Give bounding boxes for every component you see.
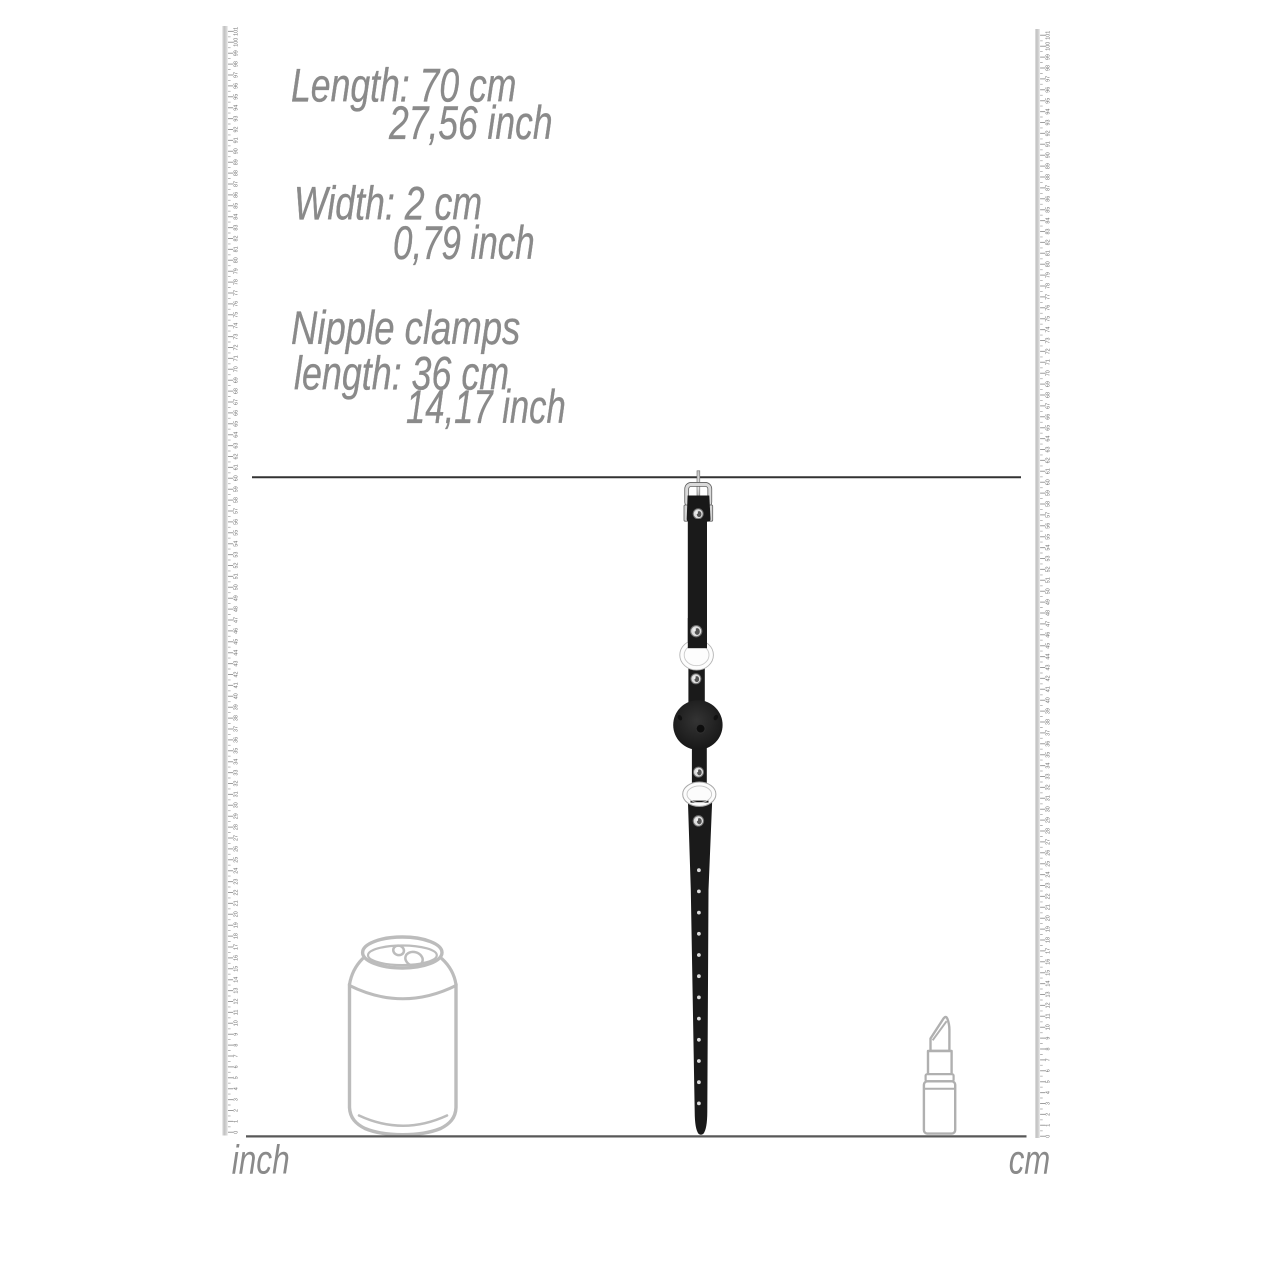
svg-text:57: 57 <box>1046 512 1052 518</box>
svg-text:32: 32 <box>234 781 240 787</box>
svg-text:17: 17 <box>234 944 240 950</box>
svg-text:93: 93 <box>1046 120 1052 126</box>
svg-text:27: 27 <box>1046 839 1052 845</box>
svg-text:26: 26 <box>1046 850 1052 856</box>
svg-text:79: 79 <box>1046 272 1052 278</box>
svg-text:27: 27 <box>234 835 240 841</box>
svg-text:cm: cm <box>1009 1136 1051 1182</box>
svg-text:73: 73 <box>234 334 240 340</box>
svg-text:89: 89 <box>234 159 240 165</box>
svg-text:64: 64 <box>234 432 240 438</box>
svg-text:87: 87 <box>1046 185 1052 191</box>
svg-text:21: 21 <box>1046 904 1052 910</box>
svg-text:84: 84 <box>1046 218 1052 224</box>
svg-text:36: 36 <box>234 737 240 743</box>
svg-text:49: 49 <box>234 595 240 601</box>
svg-text:16: 16 <box>234 955 240 961</box>
svg-text:3: 3 <box>1046 1102 1052 1105</box>
svg-text:45: 45 <box>234 639 240 645</box>
svg-text:76: 76 <box>1046 305 1052 311</box>
svg-text:1: 1 <box>1046 1124 1052 1127</box>
svg-text:15: 15 <box>234 966 240 972</box>
svg-text:76: 76 <box>234 301 240 307</box>
svg-text:94: 94 <box>1046 109 1052 115</box>
svg-text:50: 50 <box>234 584 240 590</box>
svg-text:2: 2 <box>234 1109 240 1112</box>
svg-text:80: 80 <box>234 257 240 263</box>
svg-text:14: 14 <box>234 977 240 983</box>
svg-text:67: 67 <box>1046 403 1052 409</box>
svg-text:36: 36 <box>1046 741 1052 747</box>
svg-text:41: 41 <box>234 682 240 688</box>
svg-text:90: 90 <box>234 148 240 154</box>
svg-text:86: 86 <box>234 192 240 198</box>
svg-text:75: 75 <box>1046 316 1052 322</box>
svg-text:13: 13 <box>234 988 240 994</box>
svg-text:22: 22 <box>1046 893 1052 899</box>
svg-text:56: 56 <box>1046 523 1052 529</box>
svg-text:86: 86 <box>1046 196 1052 202</box>
svg-text:42: 42 <box>1046 675 1052 681</box>
svg-text:44: 44 <box>1046 654 1052 660</box>
svg-text:26: 26 <box>234 846 240 852</box>
svg-text:14: 14 <box>1046 981 1052 987</box>
svg-text:46: 46 <box>1046 632 1052 638</box>
svg-text:10: 10 <box>234 1020 240 1026</box>
svg-text:14,17 inch: 14,17 inch <box>406 381 566 433</box>
svg-text:44: 44 <box>234 650 240 656</box>
svg-text:69: 69 <box>234 377 240 383</box>
svg-text:15: 15 <box>1046 970 1052 976</box>
svg-text:87: 87 <box>234 181 240 187</box>
svg-text:28: 28 <box>1046 828 1052 834</box>
svg-text:70: 70 <box>234 366 240 372</box>
svg-text:88: 88 <box>1046 174 1052 180</box>
svg-text:83: 83 <box>1046 229 1052 235</box>
svg-text:82: 82 <box>1046 239 1052 245</box>
svg-text:20: 20 <box>234 911 240 917</box>
svg-text:12: 12 <box>234 999 240 1005</box>
svg-text:97: 97 <box>234 72 240 78</box>
svg-text:7: 7 <box>1046 1058 1052 1061</box>
svg-text:19: 19 <box>1046 926 1052 932</box>
svg-text:8: 8 <box>1046 1048 1052 1051</box>
svg-text:7: 7 <box>234 1055 240 1058</box>
svg-text:21: 21 <box>234 900 240 906</box>
svg-text:79: 79 <box>234 268 240 274</box>
svg-text:53: 53 <box>1046 556 1052 562</box>
svg-text:93: 93 <box>234 116 240 122</box>
svg-text:34: 34 <box>1046 763 1052 769</box>
svg-text:71: 71 <box>234 355 240 361</box>
svg-text:81: 81 <box>1046 250 1052 256</box>
svg-text:6: 6 <box>1046 1069 1052 1072</box>
svg-text:65: 65 <box>234 421 240 427</box>
svg-text:52: 52 <box>234 563 240 569</box>
svg-text:71: 71 <box>1046 359 1052 365</box>
svg-text:57: 57 <box>234 508 240 514</box>
svg-text:12: 12 <box>1046 1002 1052 1008</box>
svg-text:33: 33 <box>1046 774 1052 780</box>
svg-text:10: 10 <box>1046 1024 1052 1030</box>
svg-text:43: 43 <box>1046 665 1052 671</box>
svg-text:74: 74 <box>234 323 240 329</box>
svg-text:53: 53 <box>234 552 240 558</box>
svg-text:74: 74 <box>1046 327 1052 333</box>
svg-text:18: 18 <box>234 933 240 939</box>
svg-text:78: 78 <box>1046 283 1052 289</box>
svg-text:37: 37 <box>234 726 240 732</box>
svg-text:91: 91 <box>234 137 240 143</box>
svg-text:61: 61 <box>1046 468 1052 474</box>
svg-text:29: 29 <box>234 813 240 819</box>
svg-text:91: 91 <box>1046 141 1052 147</box>
svg-text:32: 32 <box>1046 784 1052 790</box>
svg-text:24: 24 <box>1046 872 1052 878</box>
svg-text:19: 19 <box>234 922 240 928</box>
svg-text:85: 85 <box>234 203 240 209</box>
svg-text:58: 58 <box>234 497 240 503</box>
svg-text:70: 70 <box>1046 370 1052 376</box>
svg-text:29: 29 <box>1046 817 1052 823</box>
svg-text:31: 31 <box>234 791 240 797</box>
svg-text:55: 55 <box>1046 534 1052 540</box>
svg-text:59: 59 <box>234 486 240 492</box>
svg-text:9: 9 <box>234 1033 240 1036</box>
svg-text:96: 96 <box>1046 87 1052 93</box>
svg-text:30: 30 <box>234 802 240 808</box>
svg-text:65: 65 <box>1046 425 1052 431</box>
svg-text:11: 11 <box>234 1010 240 1016</box>
svg-text:100: 100 <box>1046 42 1052 51</box>
svg-text:13: 13 <box>1046 992 1052 998</box>
svg-text:3: 3 <box>234 1098 240 1101</box>
svg-text:45: 45 <box>1046 643 1052 649</box>
svg-text:18: 18 <box>1046 937 1052 943</box>
svg-text:50: 50 <box>1046 588 1052 594</box>
svg-text:inch: inch <box>232 1136 290 1182</box>
svg-text:66: 66 <box>1046 414 1052 420</box>
svg-text:64: 64 <box>1046 436 1052 442</box>
svg-text:94: 94 <box>234 105 240 111</box>
svg-text:34: 34 <box>234 759 240 765</box>
svg-text:96: 96 <box>234 83 240 89</box>
svg-text:95: 95 <box>234 94 240 100</box>
svg-text:27,56 inch: 27,56 inch <box>388 96 552 149</box>
svg-text:88: 88 <box>234 170 240 176</box>
svg-text:42: 42 <box>234 672 240 678</box>
svg-text:39: 39 <box>234 704 240 710</box>
svg-text:22: 22 <box>234 890 240 896</box>
svg-text:55: 55 <box>234 530 240 536</box>
svg-text:17: 17 <box>1046 948 1052 954</box>
svg-text:30: 30 <box>1046 806 1052 812</box>
svg-text:100: 100 <box>234 38 240 47</box>
svg-text:43: 43 <box>234 661 240 667</box>
svg-text:9: 9 <box>1046 1037 1052 1040</box>
svg-text:23: 23 <box>234 879 240 885</box>
svg-text:1: 1 <box>234 1120 240 1123</box>
svg-text:39: 39 <box>1046 708 1052 714</box>
svg-text:54: 54 <box>1046 545 1052 551</box>
svg-text:90: 90 <box>1046 152 1052 158</box>
svg-text:31: 31 <box>1046 795 1052 801</box>
svg-text:38: 38 <box>234 715 240 721</box>
svg-text:58: 58 <box>1046 501 1052 507</box>
svg-text:92: 92 <box>1046 130 1052 136</box>
svg-text:92: 92 <box>234 127 240 133</box>
svg-text:61: 61 <box>234 464 240 470</box>
svg-text:40: 40 <box>234 693 240 699</box>
svg-text:84: 84 <box>234 214 240 220</box>
svg-text:41: 41 <box>1046 686 1052 692</box>
svg-text:98: 98 <box>234 61 240 67</box>
svg-text:69: 69 <box>1046 381 1052 387</box>
svg-text:78: 78 <box>234 279 240 285</box>
svg-text:82: 82 <box>234 236 240 242</box>
svg-text:81: 81 <box>234 246 240 252</box>
svg-text:62: 62 <box>234 454 240 460</box>
svg-text:99: 99 <box>234 50 240 56</box>
svg-text:95: 95 <box>1046 98 1052 104</box>
svg-text:6: 6 <box>234 1065 240 1068</box>
svg-text:56: 56 <box>234 519 240 525</box>
svg-text:49: 49 <box>1046 599 1052 605</box>
svg-text:4: 4 <box>234 1087 240 1090</box>
svg-text:5: 5 <box>1046 1080 1052 1083</box>
svg-text:77: 77 <box>1046 294 1052 300</box>
svg-text:0,79 inch: 0,79 inch <box>393 217 535 269</box>
svg-text:60: 60 <box>1046 479 1052 485</box>
svg-text:33: 33 <box>234 770 240 776</box>
svg-text:47: 47 <box>234 617 240 623</box>
svg-text:25: 25 <box>234 857 240 863</box>
svg-text:24: 24 <box>234 868 240 874</box>
svg-text:99: 99 <box>1046 54 1052 60</box>
svg-text:8: 8 <box>234 1044 240 1047</box>
svg-text:101: 101 <box>1046 31 1052 40</box>
svg-text:62: 62 <box>1046 457 1052 463</box>
svg-text:20: 20 <box>1046 915 1052 921</box>
svg-text:25: 25 <box>1046 861 1052 867</box>
svg-text:51: 51 <box>1046 577 1052 583</box>
svg-text:68: 68 <box>1046 392 1052 398</box>
svg-text:48: 48 <box>234 606 240 612</box>
svg-text:54: 54 <box>234 541 240 547</box>
svg-text:47: 47 <box>1046 621 1052 627</box>
svg-text:28: 28 <box>234 824 240 830</box>
svg-text:48: 48 <box>1046 610 1052 616</box>
svg-text:85: 85 <box>1046 207 1052 213</box>
svg-text:35: 35 <box>1046 752 1052 758</box>
svg-text:73: 73 <box>1046 338 1052 344</box>
svg-text:46: 46 <box>234 628 240 634</box>
svg-text:38: 38 <box>1046 719 1052 725</box>
svg-text:72: 72 <box>234 345 240 351</box>
svg-text:60: 60 <box>234 475 240 481</box>
svg-text:68: 68 <box>234 388 240 394</box>
svg-text:52: 52 <box>1046 566 1052 572</box>
svg-text:80: 80 <box>1046 261 1052 267</box>
svg-text:67: 67 <box>234 399 240 405</box>
svg-text:59: 59 <box>1046 490 1052 496</box>
svg-text:72: 72 <box>1046 348 1052 354</box>
svg-text:5: 5 <box>234 1076 240 1079</box>
svg-text:4: 4 <box>1046 1091 1052 1094</box>
svg-text:66: 66 <box>234 410 240 416</box>
svg-text:35: 35 <box>234 748 240 754</box>
svg-text:75: 75 <box>234 312 240 318</box>
svg-text:0: 0 <box>234 1131 240 1134</box>
svg-text:97: 97 <box>1046 76 1052 82</box>
svg-text:37: 37 <box>1046 730 1052 736</box>
svg-text:23: 23 <box>1046 883 1052 889</box>
svg-text:98: 98 <box>1046 65 1052 71</box>
svg-text:77: 77 <box>234 290 240 296</box>
svg-text:40: 40 <box>1046 697 1052 703</box>
svg-text:2: 2 <box>1046 1113 1052 1116</box>
svg-text:89: 89 <box>1046 163 1052 169</box>
svg-text:63: 63 <box>234 443 240 449</box>
svg-text:11: 11 <box>1046 1013 1052 1019</box>
svg-text:16: 16 <box>1046 959 1052 965</box>
svg-text:63: 63 <box>1046 447 1052 453</box>
svg-text:51: 51 <box>234 573 240 579</box>
svg-text:83: 83 <box>234 225 240 231</box>
svg-text:101: 101 <box>234 27 240 36</box>
